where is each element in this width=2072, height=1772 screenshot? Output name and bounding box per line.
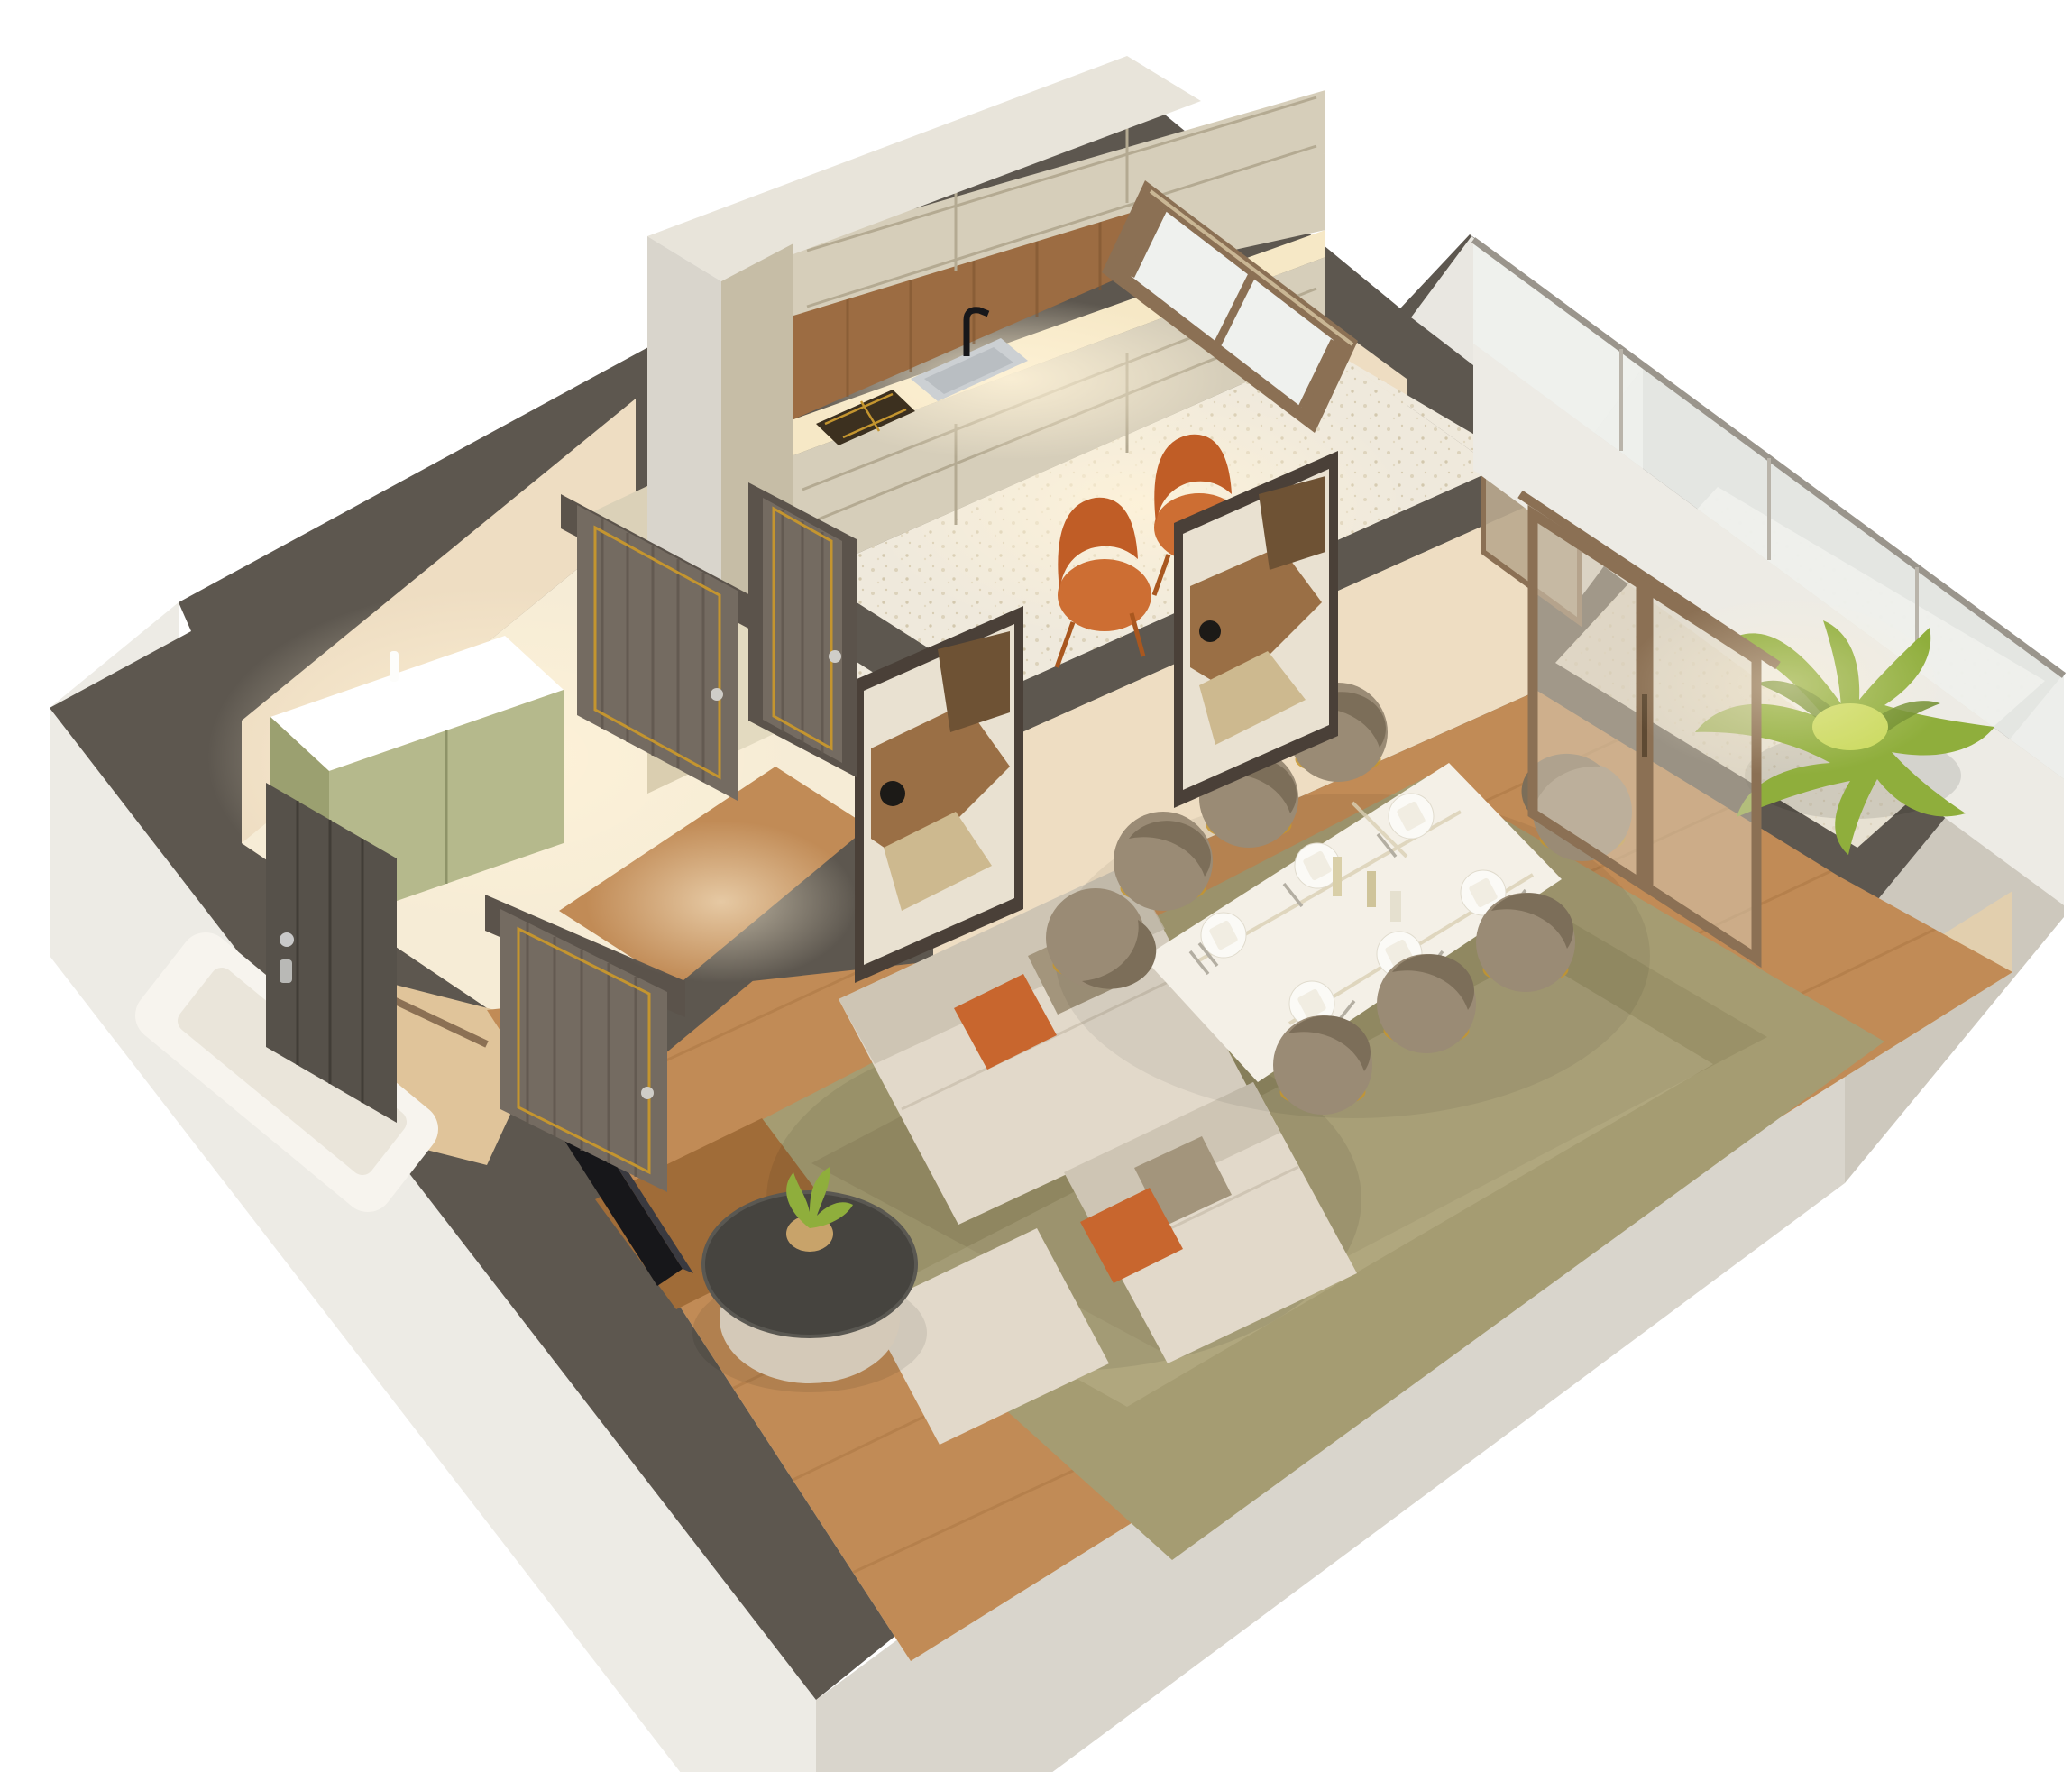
dining-chair — [1476, 893, 1575, 992]
floor-plan-stage — [0, 0, 2072, 1772]
dining-chair — [1114, 812, 1213, 911]
door-handle — [641, 1087, 654, 1099]
dining-chair — [1273, 1015, 1372, 1115]
vanity-faucet — [390, 651, 399, 682]
floor-plan-rendering — [0, 0, 2072, 1772]
candlestick — [1333, 857, 1342, 896]
candlestick — [1367, 871, 1376, 907]
art-accent-dot — [880, 781, 905, 806]
door-handle — [711, 688, 723, 701]
art-accent-dot — [1199, 620, 1221, 642]
entry-door-lock — [280, 959, 292, 983]
balcony-glow — [1623, 595, 1948, 776]
orange-chair-seat — [1058, 559, 1151, 631]
door-handle — [829, 650, 841, 663]
hall-glow — [586, 821, 857, 983]
glass-vase — [1390, 891, 1401, 922]
entry-door-handle — [280, 932, 294, 947]
dining-chair — [1377, 954, 1476, 1053]
